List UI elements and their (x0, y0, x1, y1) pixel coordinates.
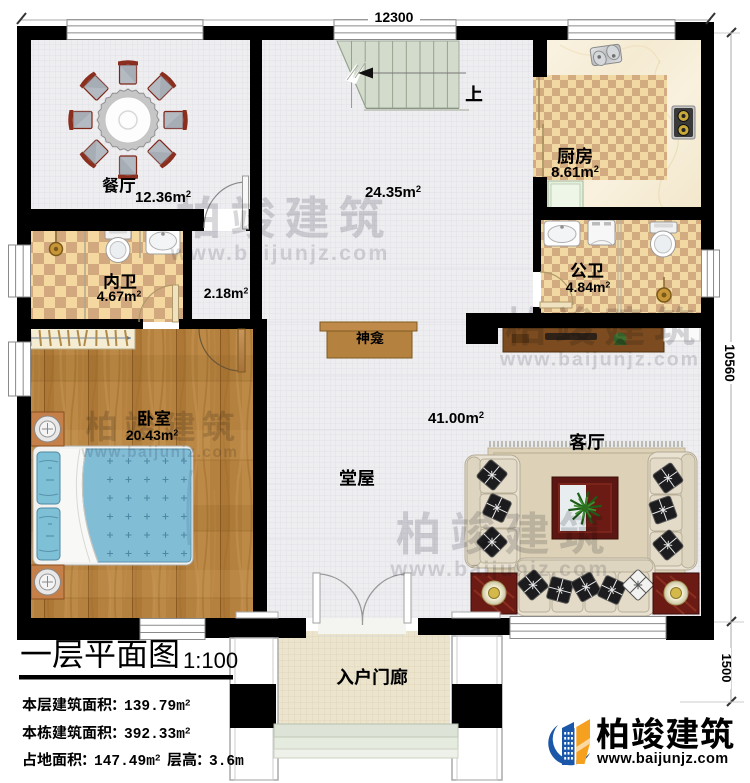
svg-text:1:100: 1:100 (183, 648, 238, 673)
svg-text:392.33m2: 392.33m2 (124, 726, 191, 744)
svg-text:3.6m: 3.6m (209, 754, 244, 770)
svg-text:4.84m2: 4.84m2 (566, 279, 611, 295)
svg-text:41.00m2: 41.00m2 (428, 410, 484, 427)
svg-text:1500: 1500 (719, 654, 734, 683)
svg-text:www.baijunjz.com: www.baijunjz.com (169, 241, 389, 265)
svg-text:www.baijunjz.com: www.baijunjz.com (499, 348, 700, 370)
svg-text:24.35m2: 24.35m2 (365, 184, 421, 201)
svg-text:www.baijunjz.com: www.baijunjz.com (596, 751, 729, 767)
svg-text:12.36m2: 12.36m2 (135, 189, 191, 206)
svg-text:8.61m2: 8.61m2 (551, 164, 599, 181)
svg-text:10560: 10560 (722, 344, 737, 382)
svg-text:12300: 12300 (375, 9, 414, 25)
svg-text:www.baijunjz.com: www.baijunjz.com (80, 444, 238, 461)
svg-text:139.79m2: 139.79m2 (124, 698, 191, 716)
svg-text:147.49m2: 147.49m2 (94, 753, 161, 771)
svg-text:4.67m2: 4.67m2 (97, 288, 142, 304)
svg-text:2.18m2: 2.18m2 (204, 285, 249, 301)
svg-text:www.baijunjz.com: www.baijunjz.com (389, 557, 609, 581)
